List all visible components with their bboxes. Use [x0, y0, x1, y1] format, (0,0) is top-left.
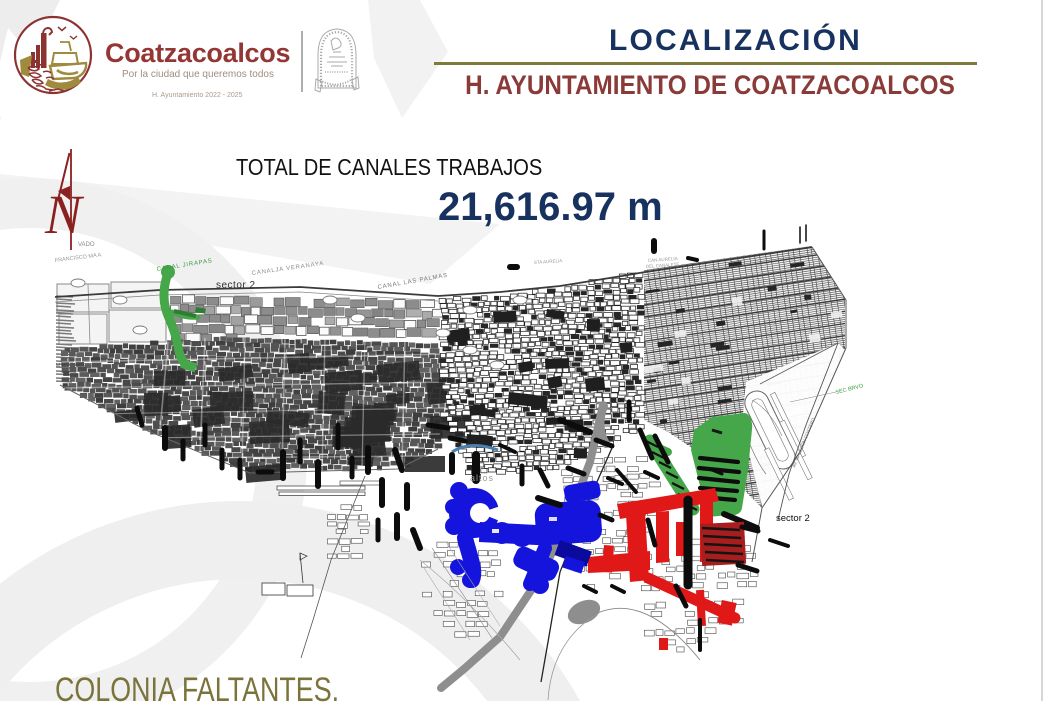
svg-text:N: N: [44, 184, 85, 245]
